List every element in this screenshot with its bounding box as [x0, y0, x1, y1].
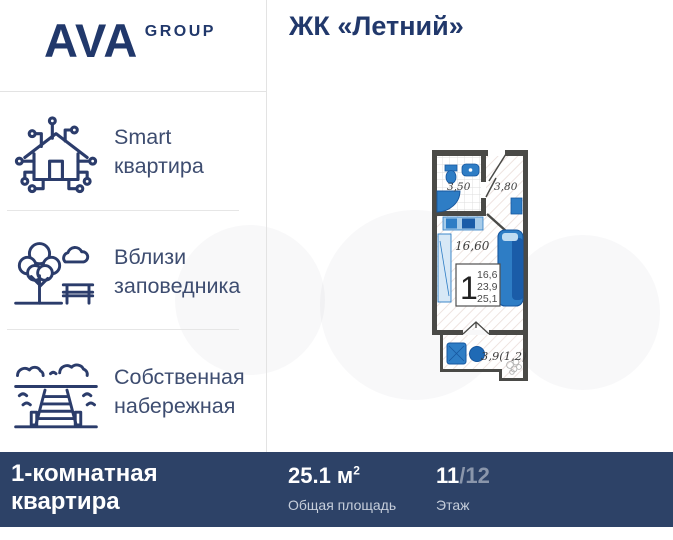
hallway-area-label: 3,80 [494, 181, 518, 193]
area-living: 16,6 [477, 269, 498, 281]
bed-blanket [512, 238, 523, 300]
floor-value: 11/12 [436, 463, 490, 489]
total-area-block: 25.1 м2 Общая площадь [288, 463, 396, 513]
apartment-type: 1-комнатная квартира [11, 460, 158, 517]
floor-total: 12 [465, 463, 489, 488]
feature-smart-label: Smart квартира [114, 123, 204, 180]
feature-smart-apartment: Smart квартира [12, 108, 204, 196]
waterfront-icon [12, 348, 100, 436]
feature-divider [7, 329, 239, 330]
vertical-divider [266, 0, 267, 452]
total-area-value: 25.1 м2 [288, 463, 396, 489]
sink-drain [469, 168, 473, 172]
ava-group-logo: AVA GROUP [44, 16, 216, 65]
feature-divider [7, 210, 239, 211]
bed-pillow [502, 233, 518, 241]
floor-label: Этаж [436, 497, 490, 513]
feature-reserve-label: Вблизи заповедника [114, 243, 240, 300]
stove [462, 219, 475, 229]
summary-bar: 1-комнатная квартира 25.1 м2 Общая площа… [0, 452, 673, 527]
floor-plan: 3,50 3,80 16,60 3,9(1,2) 1 16,6 23,9 25,… [425, 145, 535, 385]
feature-embankment-label: Собственная набережная [114, 363, 245, 420]
area-total: 25,1 [477, 293, 498, 305]
square-superscript: 2 [353, 464, 360, 478]
logo-sub-text: GROUP [145, 23, 216, 41]
total-area-label: Общая площадь [288, 497, 396, 513]
listing-banner: AVA GROUP ЖК «Летний» Smart квартира [0, 0, 673, 540]
bathroom-area-label: 3,50 [447, 181, 471, 193]
smart-home-icon [12, 108, 100, 196]
feature-near-reserve: Вблизи заповедника [12, 228, 240, 316]
living-area-label: 16,60 [455, 239, 490, 253]
feature-embankment: Собственная набережная [12, 348, 245, 436]
complex-title: ЖК «Летний» [289, 11, 464, 42]
kitchen-sink [446, 219, 457, 229]
area-no-balcony: 23,9 [477, 281, 498, 293]
balcony-area-label: 3,9(1,2) [481, 349, 527, 363]
logo-divider [0, 91, 266, 92]
floor-block: 11/12 Этаж [436, 463, 490, 513]
logo-main-text: AVA [44, 16, 138, 65]
room-info-box: 1 16,6 23,9 25,1 [456, 264, 500, 306]
park-icon [12, 228, 100, 316]
rooms-count: 1 [460, 270, 478, 306]
cabinet [511, 198, 522, 214]
